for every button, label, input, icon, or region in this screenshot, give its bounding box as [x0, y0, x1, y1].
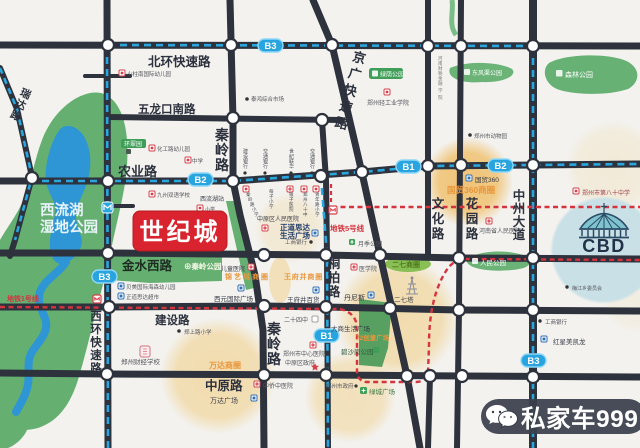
svg-text:交通银行: 交通银行	[310, 148, 315, 170]
svg-text:梅江乡委员会: 梅江乡委员会	[572, 285, 602, 292]
svg-text:万达广场: 万达广场	[210, 396, 238, 405]
svg-text:大商生活广场: 大商生活广场	[331, 324, 371, 333]
svg-text:小柱南国际幼儿园: 小柱南国际幼儿园	[127, 70, 172, 78]
svg-text:B2: B2	[494, 161, 506, 172]
svg-text:河南省人民医院: 河南省人民医院	[479, 227, 521, 235]
svg-text:中学: 中学	[192, 157, 204, 165]
svg-text:B3: B3	[98, 272, 110, 283]
svg-text:西流湖站: 西流湖站	[200, 195, 224, 203]
svg-text:金水西路: 金水西路	[121, 258, 173, 273]
svg-text:建设路: 建设路	[155, 313, 190, 327]
svg-text:绿城广场: 绿城广场	[369, 387, 396, 396]
svg-text:世纪联华: 世纪联华	[289, 148, 294, 170]
svg-text:中原区政府: 中原区政府	[285, 359, 315, 367]
svg-text:生活广场: 生活广场	[280, 230, 310, 240]
svg-text:郑州市第八十中学: 郑州市第八十中学	[582, 189, 630, 197]
svg-text:每子小学: 每子小学	[269, 188, 274, 209]
svg-text:二十四中: 二十四中	[284, 316, 308, 324]
svg-text:私家车999: 私家车999	[521, 404, 638, 433]
svg-text:地铁5号线: 地铁5号线	[330, 223, 365, 233]
svg-text:郑州财经学校: 郑州财经学校	[121, 357, 161, 366]
svg-text:西元国际广场: 西元国际广场	[214, 294, 254, 303]
svg-text:王府井百货: 王府井百货	[287, 295, 320, 304]
svg-text:河南财税金融学院: 河南财税金融学院	[438, 55, 443, 101]
svg-text:工商银行: 工商银行	[545, 318, 568, 326]
svg-text:地铁1号线: 地铁1号线	[7, 294, 39, 303]
svg-text:九州双语学校: 九州双语学校	[157, 191, 191, 199]
svg-text:72创意广场: 72创意广场	[356, 333, 390, 342]
svg-text:五龙口南路: 五龙口南路	[138, 102, 196, 116]
svg-text:世纪城: 世纪城	[140, 218, 221, 246]
svg-text:泰鸿综合市场: 泰鸿综合市场	[251, 95, 285, 103]
svg-text:文化路: 文化路	[432, 196, 445, 241]
svg-text:中侨中医院: 中侨中医院	[263, 382, 293, 390]
svg-text:国贸360: 国贸360	[475, 175, 499, 184]
svg-text:医学院: 医学院	[359, 265, 377, 273]
svg-text:B2: B2	[194, 175, 206, 186]
svg-text:万达商圈: 万达商圈	[208, 360, 241, 370]
svg-text:国贸360商圈: 国贸360商圈	[447, 185, 495, 195]
svg-text:王府井商圈: 王府井商圈	[284, 272, 323, 281]
svg-text:贝美国际海森幼儿园: 贝美国际海森幼儿园	[126, 283, 176, 291]
svg-text:交通银行: 交通银行	[263, 148, 268, 170]
svg-text:红星美凯龙: 红星美凯龙	[553, 337, 586, 346]
svg-text:绿荫公园: 绿荫公园	[380, 71, 404, 79]
svg-text:人民公园: 人民公园	[480, 259, 506, 267]
svg-text:农业路: 农业路	[117, 164, 158, 179]
svg-text:⊕秦岭公园: ⊕秦岭公园	[184, 261, 222, 271]
svg-text:秦岭路: 秦岭路	[214, 127, 230, 173]
svg-text:郑上路小学: 郑上路小学	[184, 328, 212, 336]
svg-text:二七商圈: 二七商圈	[392, 260, 420, 269]
svg-text:银子医院: 银子医院	[289, 191, 294, 213]
svg-text:郑州八十中: 郑州八十中	[303, 191, 308, 218]
svg-text:东风渠公园: 东风渠公园	[472, 69, 502, 77]
svg-text:桐柏路: 桐柏路	[328, 256, 341, 299]
svg-text:环翠园: 环翠园	[124, 141, 142, 148]
svg-text:西环快速路: 西环快速路	[89, 310, 102, 375]
svg-text:B3: B3	[264, 41, 276, 52]
svg-text:儿童医院: 儿童医院	[221, 265, 245, 273]
svg-text:正道思达超市: 正道思达超市	[126, 293, 160, 301]
svg-text:北环快速路: 北环快速路	[148, 54, 211, 69]
svg-text:碧沙岗公园: 碧沙岗公园	[341, 347, 374, 356]
svg-text:郑州市中心医院: 郑州市中心医院	[283, 350, 325, 358]
svg-text:锦艺城商圈: 锦艺城商圈	[225, 272, 270, 281]
svg-text:二七塔: 二七塔	[394, 295, 414, 304]
svg-text:郑州市政府: 郑州市政府	[326, 382, 354, 390]
svg-text:湿地公园: 湿地公园	[40, 218, 98, 236]
svg-text:B1: B1	[402, 162, 415, 173]
svg-text:秦岭路: 秦岭路	[266, 321, 282, 367]
svg-text:青年路小学: 青年路小学	[315, 191, 320, 217]
svg-text:西流湖: 西流湖	[40, 201, 84, 219]
svg-text:中原区人民医院: 中原区人民医院	[257, 215, 299, 223]
svg-text:月季公园: 月季公园	[358, 240, 382, 248]
svg-text:B3: B3	[527, 356, 539, 367]
svg-text:郑州市动物园: 郑州市动物园	[474, 132, 508, 140]
svg-text:丹尼斯: 丹尼斯	[344, 293, 365, 302]
svg-text:工商银行: 工商银行	[285, 238, 308, 246]
svg-text:中原路: 中原路	[205, 378, 243, 393]
svg-text:建设银行: 建设银行	[243, 148, 248, 170]
svg-text:CBD: CBD	[582, 236, 626, 256]
svg-text:郑州轻工业学院: 郑州轻工业学院	[367, 99, 409, 107]
svg-text:花园路: 花园路	[466, 196, 479, 241]
svg-text:化工路幼儿园: 化工路幼儿园	[157, 145, 191, 153]
svg-text:森林公园: 森林公园	[565, 70, 593, 79]
